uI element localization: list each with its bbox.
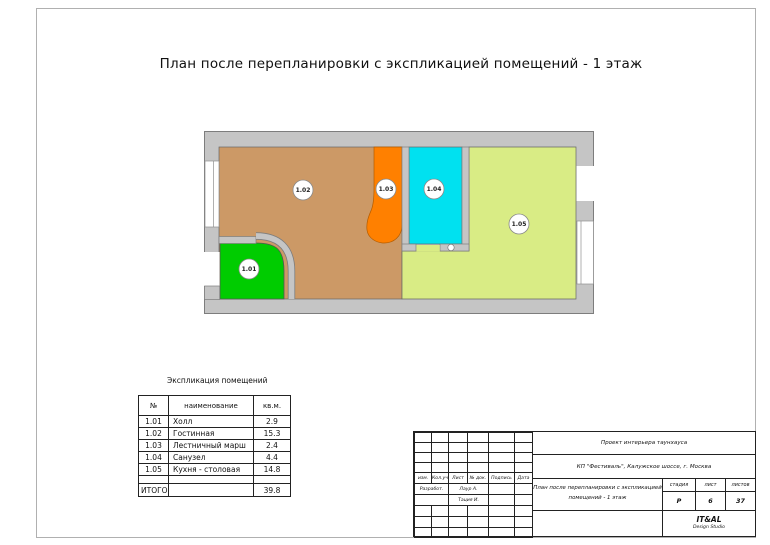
window-right <box>577 221 594 284</box>
page-title: План после перепланировки с экспликацией… <box>32 56 770 72</box>
wall-above-hall <box>219 237 256 244</box>
room-number-text: 1.01 <box>242 266 257 273</box>
room-number-text: 1.02 <box>296 187 311 194</box>
title-block-signature-grid: изм. Кол.уч Лист № док. Подпись Дата Раз… <box>414 432 533 538</box>
room-name: Санузел <box>169 452 254 464</box>
header-list: Лист <box>449 473 468 484</box>
col-header-number: № <box>139 396 169 416</box>
title-block: изм. Кол.уч Лист № док. Подпись Дата Раз… <box>413 431 756 537</box>
table-row: 1.04 Санузел 4.4 <box>139 452 291 464</box>
room-number-text: 1.03 <box>379 186 394 193</box>
room-name: Лестничный марш <box>169 440 254 452</box>
room-label-1-02: 1.02 <box>293 180 313 200</box>
stage-label: стадия <box>663 479 695 491</box>
header-podpis: Подпись <box>489 473 515 484</box>
room-name: Кухня - столовая <box>169 464 254 476</box>
empty-row <box>139 476 291 484</box>
studio-name: IT&AL <box>663 515 755 524</box>
doc-title-row: План после перепланировки с экспликацией… <box>533 479 755 511</box>
sheet-label: лист <box>695 479 725 491</box>
room-area: 14.8 <box>254 464 291 476</box>
sheets-value: 37 <box>725 492 755 510</box>
room-id: 1.02 <box>139 428 169 440</box>
opening-right <box>577 166 595 201</box>
logo-row: IT&AL Design Studio <box>533 511 755 536</box>
grid-header-row: изм. Кол.уч Лист № док. Подпись Дата <box>415 473 533 484</box>
room-id: 1.01 <box>139 416 169 428</box>
bathroom-wall-left <box>402 147 409 251</box>
developer-name: Лаур А. <box>449 484 489 495</box>
table-row: 1.05 Кухня - столовая 14.8 <box>139 464 291 476</box>
studio-subtitle: Design Studio <box>663 525 755 530</box>
wall-corner-block <box>205 286 220 300</box>
table-row: 1.02 Гостинная 15.3 <box>139 428 291 440</box>
explication-table: № наименование кв.м. 1.01 Холл 2.9 1.02 … <box>138 395 291 497</box>
header-koluch: Кол.уч <box>432 473 449 484</box>
floor-plan-svg: 1.01 1.02 1.03 1.04 1.05 <box>204 131 594 314</box>
col-header-area: кв.м. <box>254 396 291 416</box>
document-title-line2: помещений - 1 этаж <box>533 493 662 503</box>
bathroom-wall-right <box>462 147 469 251</box>
empty-cell <box>533 511 663 536</box>
document-title-line1: План после перепланировки с экспликацией <box>533 483 662 493</box>
project-address: КП "Фестиваль", Калужское шоссе, г. Моск… <box>533 455 755 479</box>
project-name: Проект интерьера таунхауса <box>533 432 755 455</box>
room-area: 2.4 <box>254 440 291 452</box>
developer-label: Разработ. <box>415 484 449 495</box>
table-row: 1.03 Лестничный марш 2.4 <box>139 440 291 452</box>
room-label-1-03: 1.03 <box>376 179 396 199</box>
room-id: 1.05 <box>139 464 169 476</box>
studio-logo: IT&AL Design Studio <box>663 511 755 536</box>
floor-plan: 1.01 1.02 1.03 1.04 1.05 <box>204 131 594 318</box>
room-label-1-04: 1.04 <box>424 179 444 199</box>
bathroom-door-gap <box>416 245 439 251</box>
explication-title: Экспликация помещений <box>167 376 268 385</box>
sheets-label: листов <box>725 479 755 491</box>
room-number-text: 1.05 <box>512 221 527 228</box>
room-area: 2.9 <box>254 416 291 428</box>
room-label-1-05: 1.05 <box>509 214 529 234</box>
room-number-text: 1.04 <box>427 186 442 193</box>
second-name: Тация И. <box>449 495 489 506</box>
window-left <box>205 161 219 227</box>
header-izm: изм. <box>415 473 432 484</box>
header-data: Дата <box>515 473 533 484</box>
header-dok: № док. <box>468 473 489 484</box>
bathroom-wall-stub-left <box>402 244 416 251</box>
sheet-value: 6 <box>695 492 725 510</box>
room-id: 1.03 <box>139 440 169 452</box>
room-area: 15.3 <box>254 428 291 440</box>
room-label-1-01: 1.01 <box>239 259 259 279</box>
room-area: 4.4 <box>254 452 291 464</box>
document-title: План после перепланировки с экспликацией… <box>533 479 663 510</box>
total-value: 39.8 <box>254 484 291 497</box>
total-label: ИТОГО <box>139 484 169 497</box>
col-header-name: наименование <box>169 396 254 416</box>
total-row: ИТОГО 39.8 <box>139 484 291 497</box>
stage-sheet-table: стадия лист листов Р 6 37 <box>663 479 755 510</box>
stage-value: Р <box>663 492 695 510</box>
room-name: Холл <box>169 416 254 428</box>
room-id: 1.04 <box>139 452 169 464</box>
door-symbol <box>448 244 454 250</box>
drawing-sheet: План после перепланировки с экспликацией… <box>0 0 770 545</box>
room-name: Гостинная <box>169 428 254 440</box>
opening-left <box>204 252 220 286</box>
title-block-right: Проект интерьера таунхауса КП "Фестиваль… <box>533 432 755 536</box>
explication-header-row: № наименование кв.м. <box>139 396 291 416</box>
table-row: 1.01 Холл 2.9 <box>139 416 291 428</box>
